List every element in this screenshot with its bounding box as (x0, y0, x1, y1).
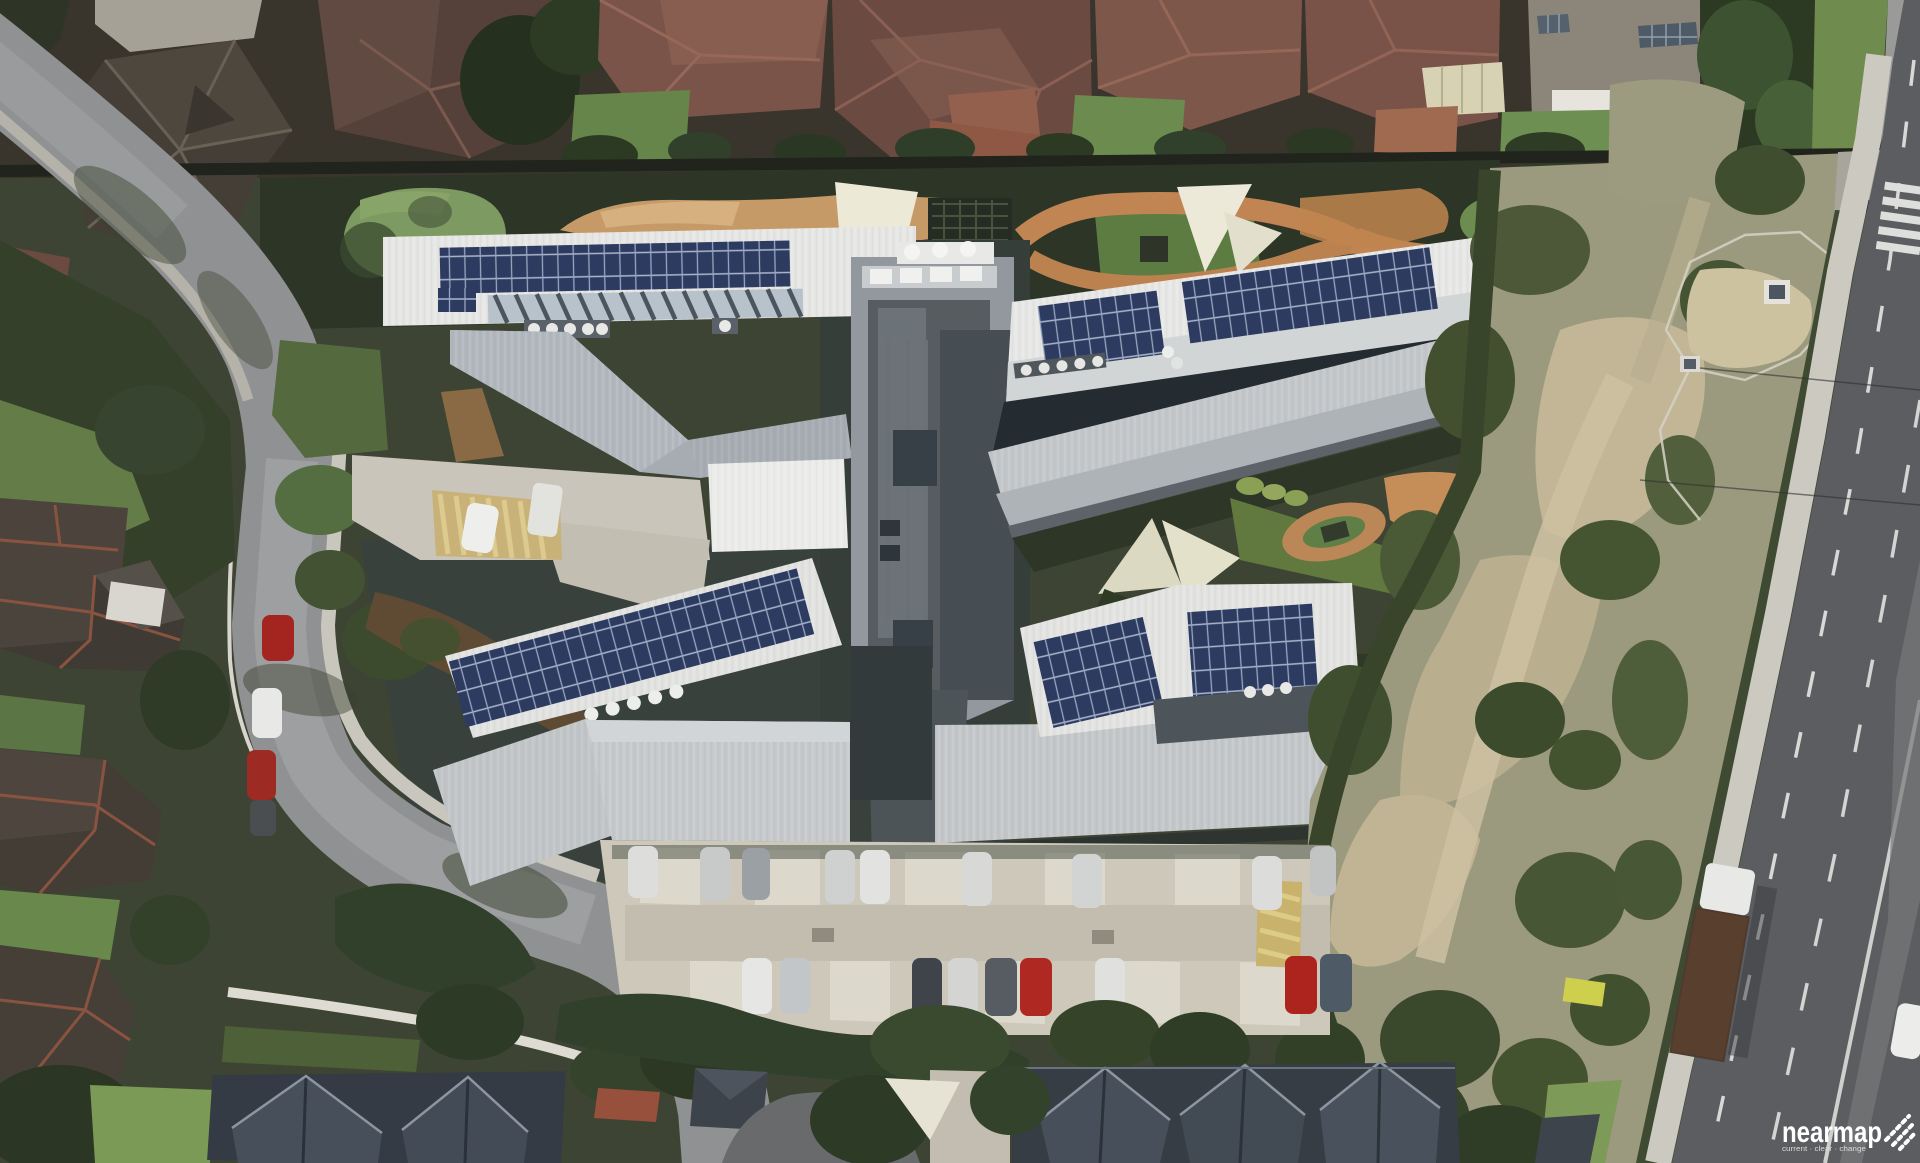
svg-text:current · clear · change: current · clear · change (1782, 1144, 1866, 1153)
